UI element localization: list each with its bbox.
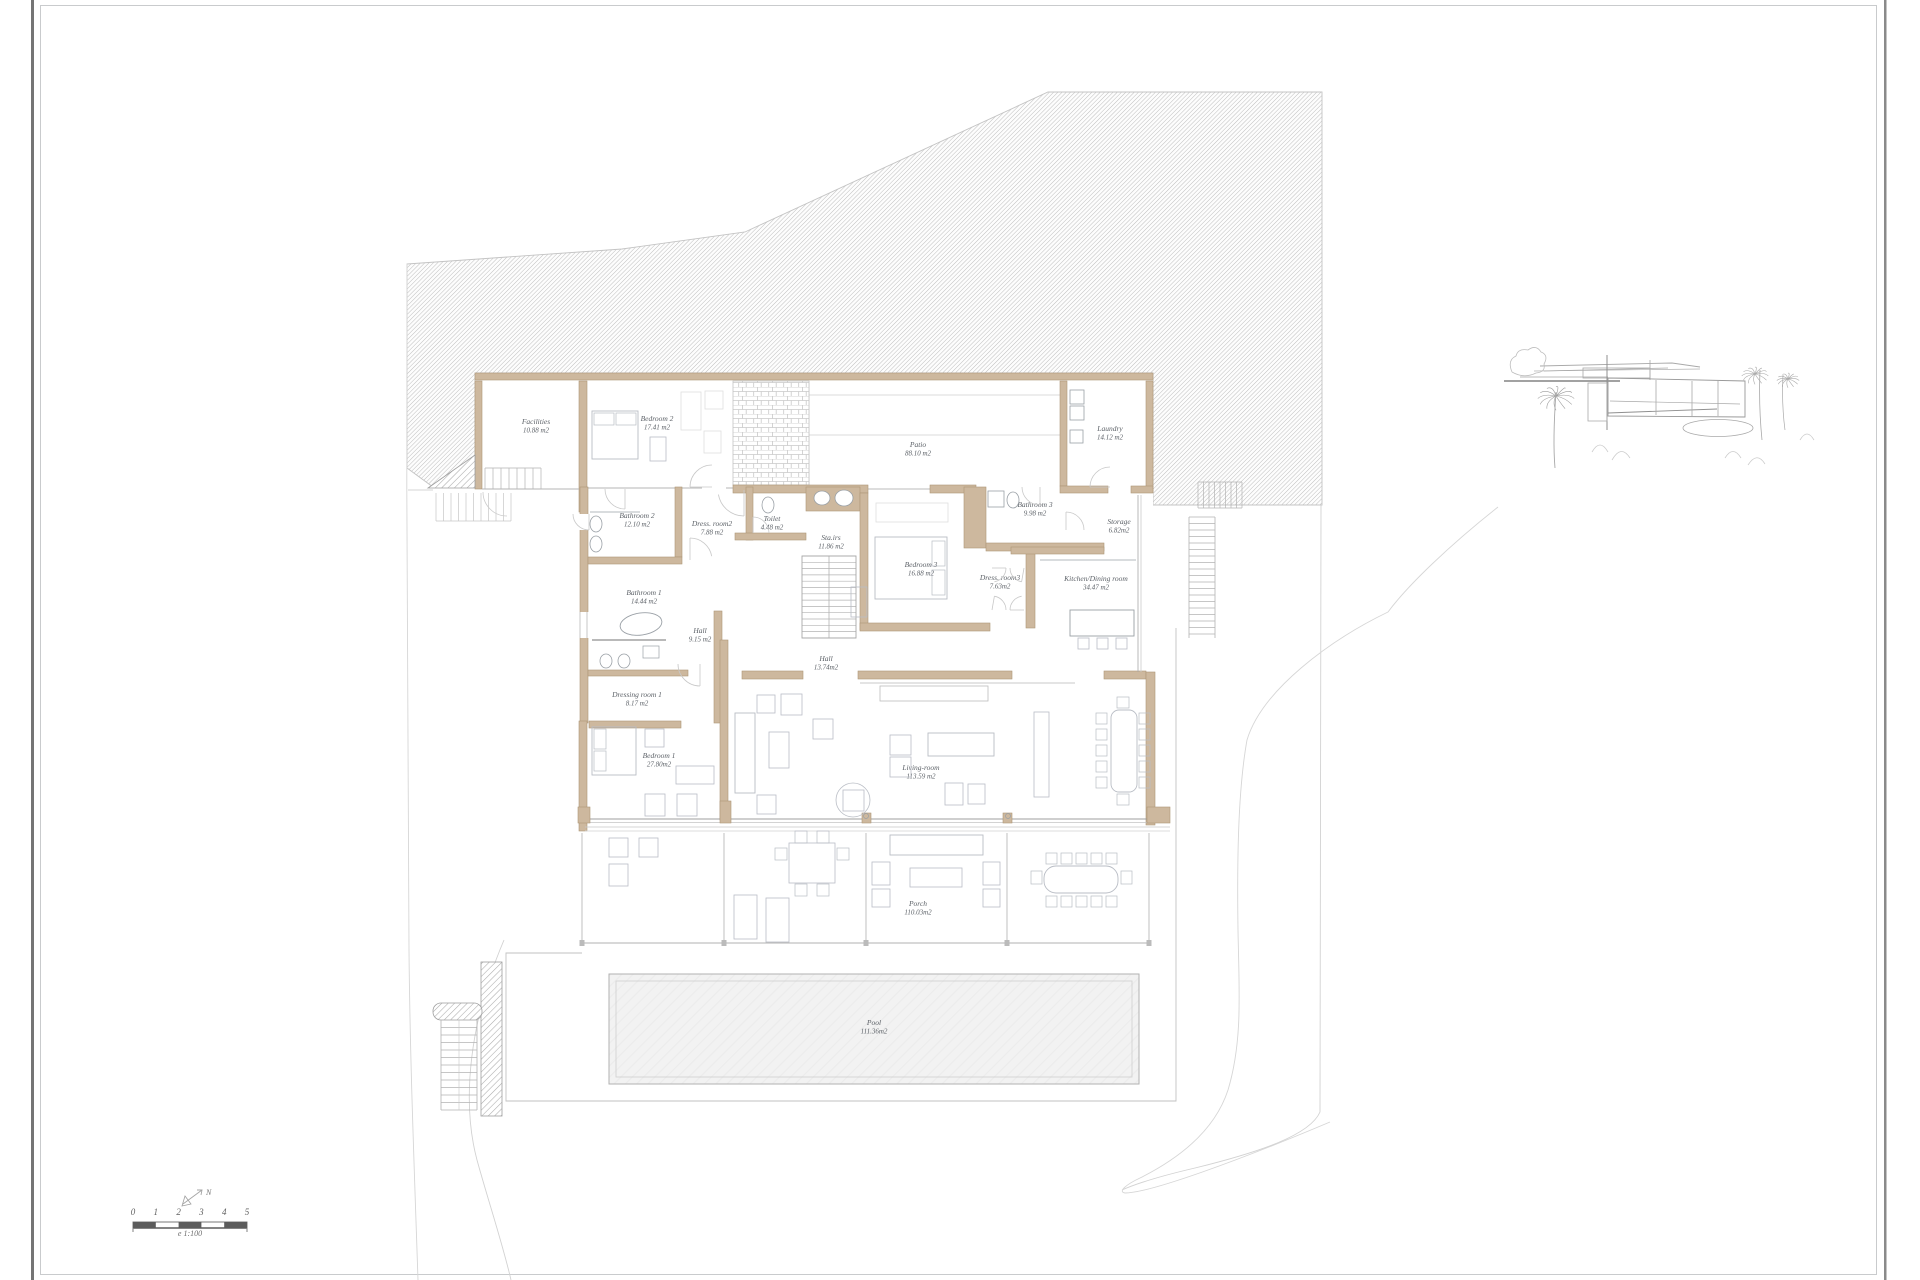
svg-text:Toilet4.48 m2: Toilet4.48 m2 bbox=[761, 514, 784, 532]
svg-text:Bathroom 212.10 m2: Bathroom 212.10 m2 bbox=[619, 511, 655, 529]
svg-text:0: 0 bbox=[131, 1207, 136, 1217]
svg-text:e 1:100: e 1:100 bbox=[178, 1229, 202, 1238]
svg-text:2: 2 bbox=[176, 1207, 181, 1217]
svg-text:3: 3 bbox=[198, 1207, 204, 1217]
svg-text:Bedroom 127.80m2: Bedroom 127.80m2 bbox=[643, 751, 676, 769]
svg-text:Bathroom 114.44 m2: Bathroom 114.44 m2 bbox=[626, 588, 661, 606]
svg-text:Facilities10.88 m2: Facilities10.88 m2 bbox=[521, 417, 550, 435]
svg-text:Sta.irs11.86 m2: Sta.irs11.86 m2 bbox=[818, 533, 844, 551]
svg-text:Living-room113.59 m2: Living-room113.59 m2 bbox=[901, 763, 940, 781]
svg-text:Bedroom 316.88 m2: Bedroom 316.88 m2 bbox=[905, 560, 938, 578]
svg-text:Laundry14.12 m2: Laundry14.12 m2 bbox=[1096, 424, 1123, 442]
svg-text:4: 4 bbox=[222, 1207, 227, 1217]
svg-text:1: 1 bbox=[154, 1207, 159, 1217]
svg-text:N: N bbox=[205, 1188, 212, 1197]
svg-text:5: 5 bbox=[245, 1207, 250, 1217]
svg-text:Bedroom 217.41 m2: Bedroom 217.41 m2 bbox=[641, 414, 674, 432]
svg-text:Storage6.82m2: Storage6.82m2 bbox=[1107, 517, 1131, 535]
